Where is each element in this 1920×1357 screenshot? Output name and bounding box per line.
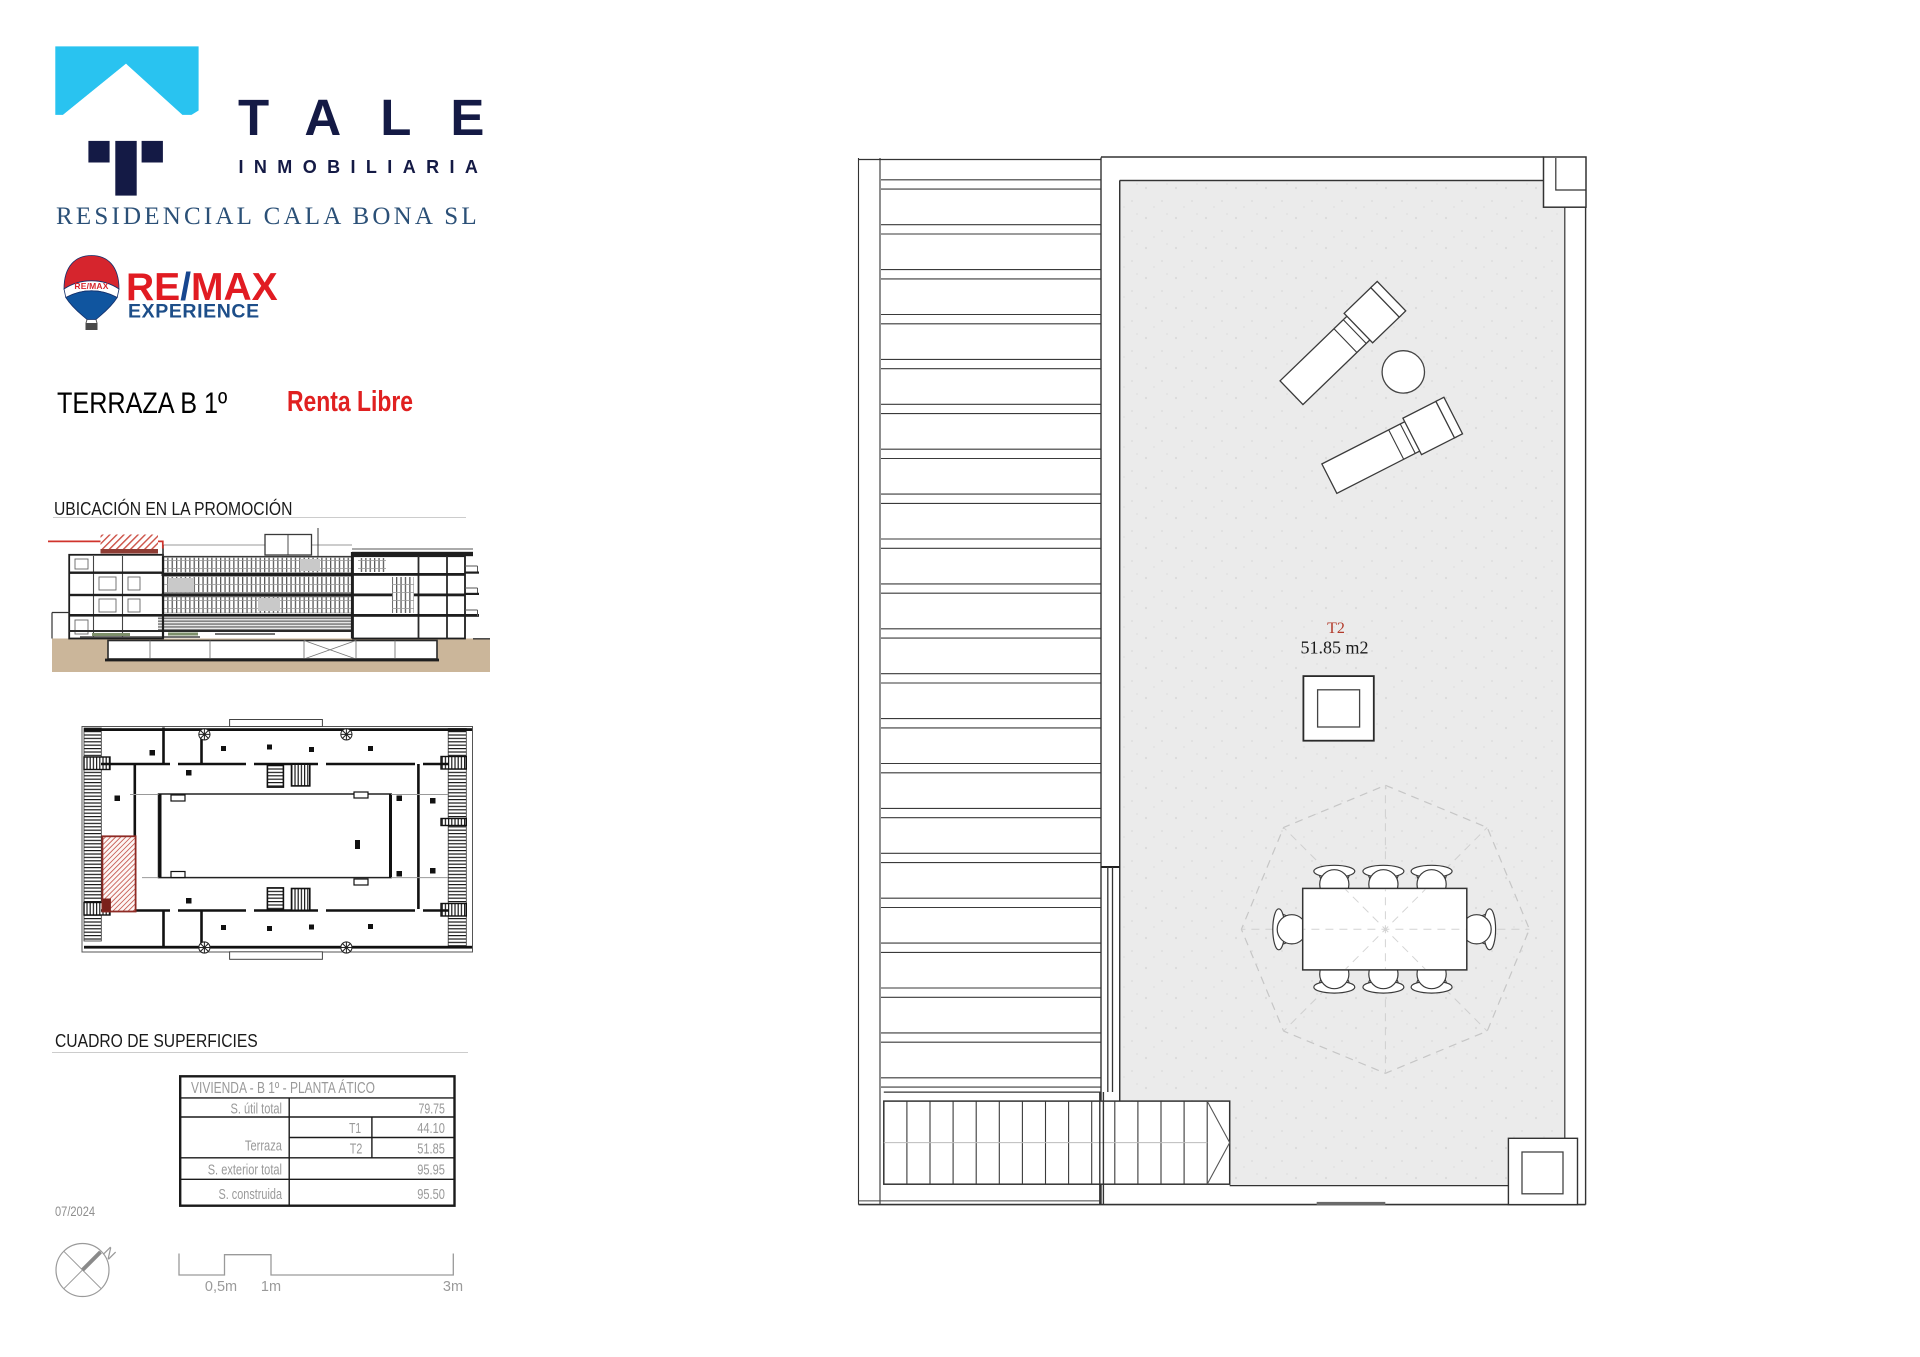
svg-text:T2: T2: [1327, 620, 1345, 637]
svg-text:51.85 m2: 51.85 m2: [1300, 638, 1368, 658]
